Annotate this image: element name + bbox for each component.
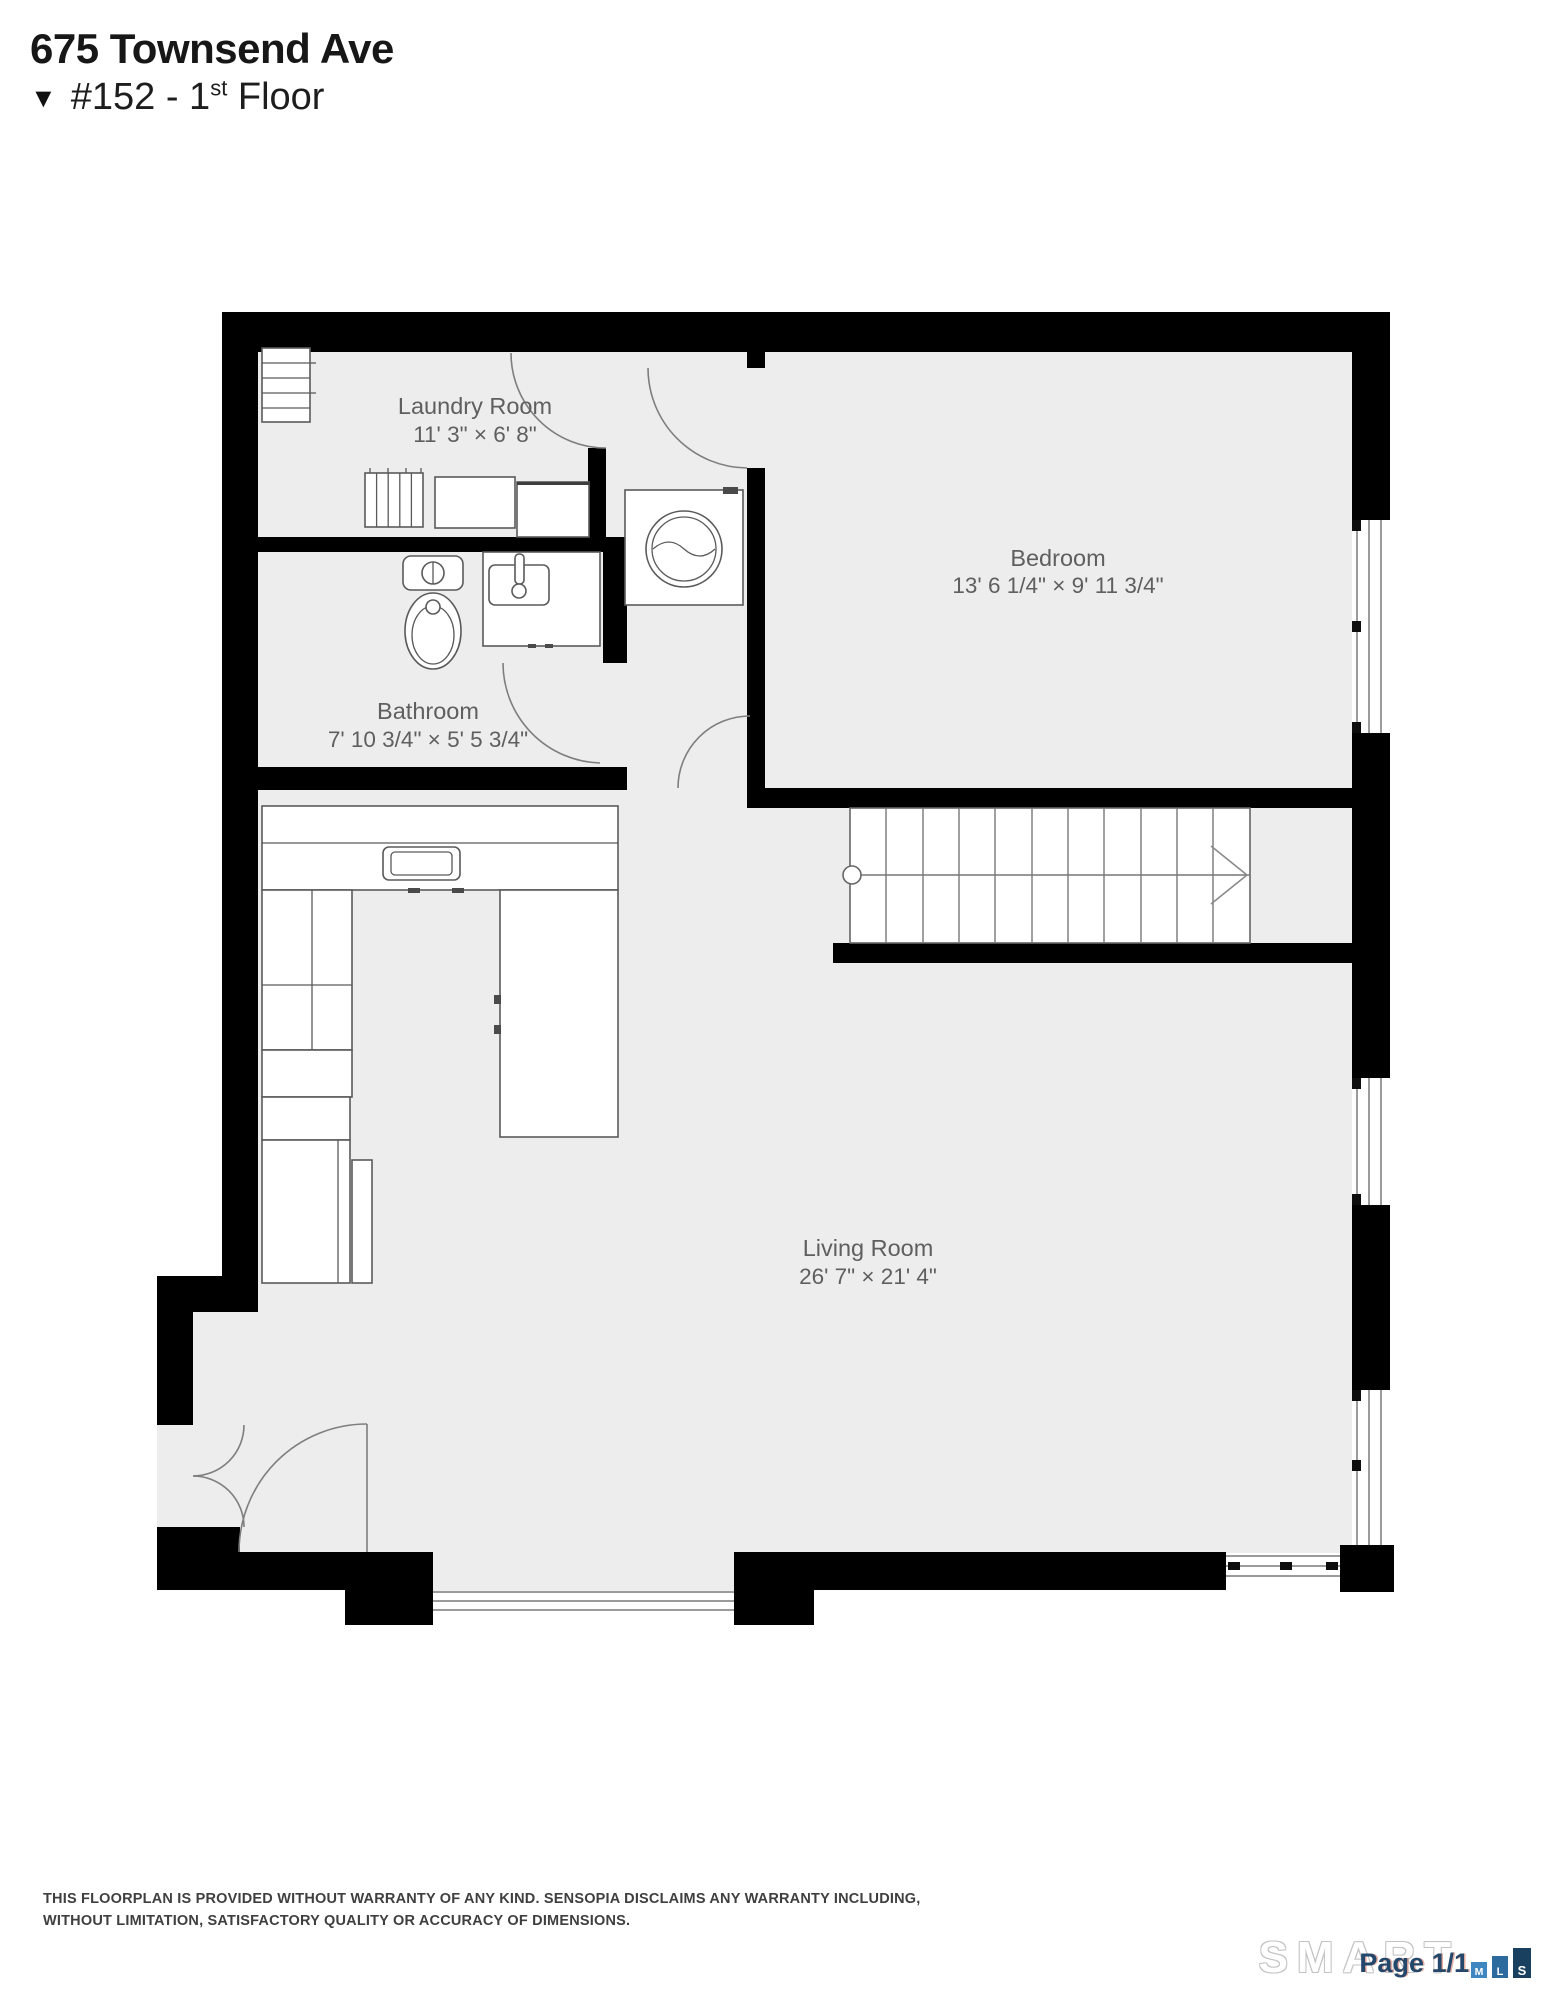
floorplan-page: 675 Townsend Ave ▼ #152 - 1st Floor — [0, 0, 1545, 2000]
shelf-icon — [262, 348, 316, 422]
room-dims-living: 26' 7" × 21' 4" — [799, 1264, 937, 1289]
laundry-counter-icon — [435, 477, 589, 537]
disclaimer-line-1: THIS FLOORPLAN IS PROVIDED WITHOUT WARRA… — [43, 1889, 1043, 1911]
washing-machine-icon — [625, 487, 743, 605]
mls-block-m: M — [1471, 1962, 1487, 1978]
staircase — [843, 808, 1250, 943]
window-bottom-right — [1226, 1556, 1340, 1576]
disclaimer-line-2: WITHOUT LIMITATION, SATISFACTORY QUALITY… — [43, 1911, 1043, 1933]
room-dims-bedroom: 13' 6 1/4" × 9' 11 3/4" — [952, 573, 1163, 598]
room-label-bedroom: Bedroom — [1010, 545, 1105, 571]
window-living-right-upper — [1352, 1078, 1381, 1205]
room-label-living: Living Room — [803, 1235, 934, 1261]
disclaimer: THIS FLOORPLAN IS PROVIDED WITHOUT WARRA… — [43, 1889, 1043, 1932]
refrigerator-icon — [262, 1140, 372, 1283]
bathroom-sink-icon — [483, 552, 600, 648]
room-label-laundry: Laundry Room — [398, 393, 552, 419]
accordion-closet-icon — [365, 468, 423, 527]
room-label-bathroom: Bathroom — [377, 698, 479, 724]
kitchen-cabinets — [262, 890, 352, 1140]
window-bay-front — [433, 1592, 734, 1610]
mls-block-s: S — [1513, 1948, 1531, 1978]
window-bedroom-right — [1352, 520, 1381, 733]
window-living-right-lower — [1352, 1390, 1381, 1545]
toilet-icon — [403, 556, 463, 669]
mls-block-l: L — [1492, 1956, 1508, 1978]
kitchen-counter — [262, 806, 618, 893]
kitchen-island — [494, 890, 618, 1137]
floorplan-drawing: Laundry Room 11' 3" × 6' 8" Bedroom 13' … — [0, 0, 1545, 2000]
mls-blocks: M L S — [1466, 1948, 1531, 1978]
room-dims-laundry: 11' 3" × 6' 8" — [413, 422, 537, 447]
room-dims-bathroom: 7' 10 3/4" × 5' 5 3/4" — [328, 727, 528, 752]
page-indicator: Page 1/1 — [1359, 1948, 1469, 1979]
stair-start-marker — [843, 866, 861, 884]
